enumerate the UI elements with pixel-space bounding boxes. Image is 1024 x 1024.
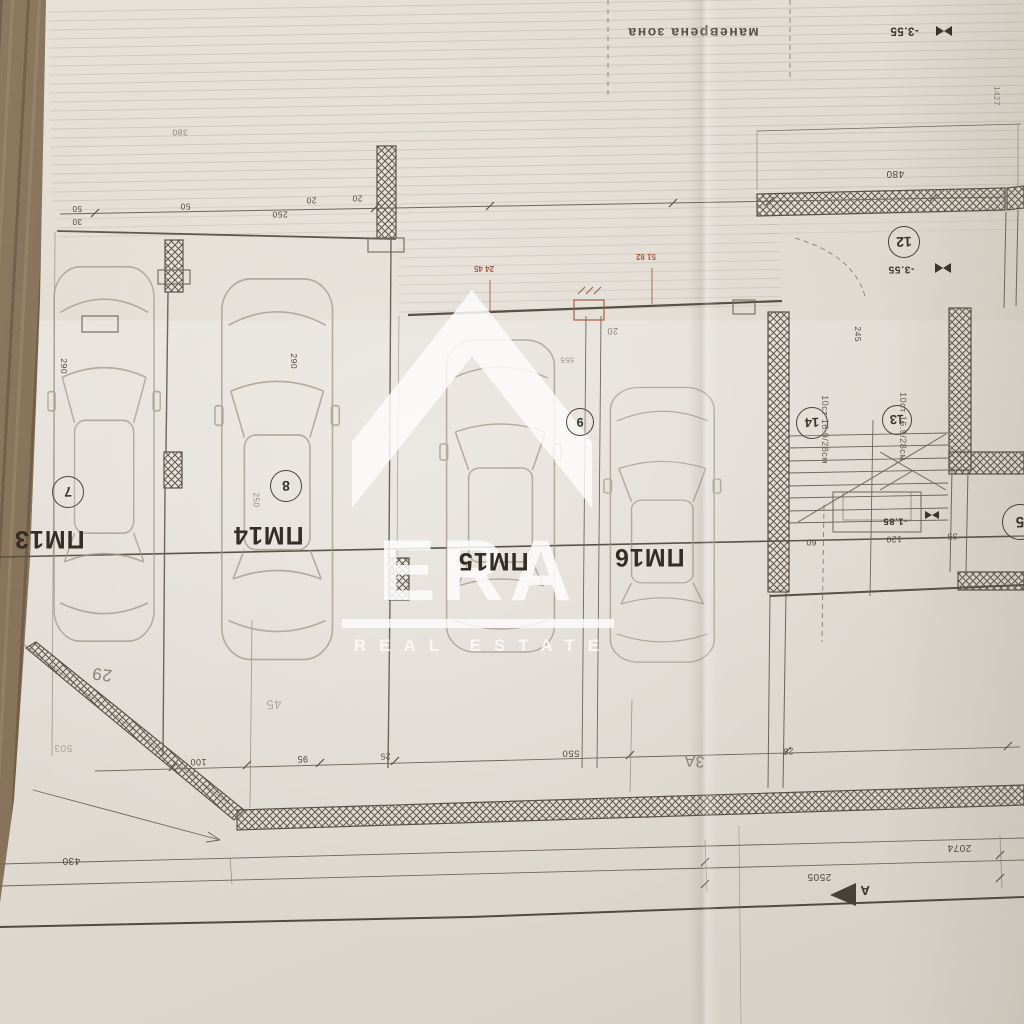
dim-50b: 50 [72,204,82,212]
red-mark-2-top: 51 [647,252,656,261]
red-mark-2-bottom: 82 [636,252,645,261]
red-mark-2: 51 82 [636,252,656,261]
dim-380: 380 [172,128,188,137]
dim-20b: 20 [352,194,362,203]
dim-120: 120 [886,535,902,544]
dim-60: 60 [806,538,816,547]
stair-note-1: 10ст 16.9/28см [820,395,829,464]
dim-25b: 25 [783,747,793,756]
dim-430: 430 [62,855,80,865]
handwritten-29: 29 [91,665,113,684]
dim-2074: 2074 [947,842,971,852]
photo-of-floor-plan: ERA REAL ESTATE маневрена зона -3.55 -3.… [0,0,1024,1024]
red-mark-1: 24 45 [474,264,494,273]
stair-note-2: 10ст 16.9/28см [898,392,907,461]
dim-25a: 25 [380,752,390,761]
dim-50a: 50 [180,202,190,211]
red-mark-1-top: 24 [485,264,494,273]
dim-550: 550 [562,748,579,758]
dim-20a: 20 [306,196,316,205]
dim-555: 555 [560,356,574,364]
dim-35: 35 [947,532,957,541]
dim-290b: 290 [290,353,299,369]
parking-label-pm15: ПМ15 [458,548,529,573]
dim-30: 30 [72,217,82,225]
dim-290a: 290 [60,358,69,374]
level-mark-stair: -3.55 [888,264,914,275]
dim-20-pencil: 20 [607,326,618,335]
parking-label-pm13: ПМ13 [14,526,85,551]
dim-2505: 2505 [807,871,831,881]
level-mark-ramp: -3.55 [890,24,919,36]
plan-linework [0,0,1024,1024]
dim-1427: 1427 [992,86,1000,106]
red-mark-1-bottom: 45 [474,264,483,273]
level-mark-landing: -1.85 [883,516,907,526]
dim-480: 480 [886,168,904,178]
parking-label-pm14: ПМ14 [233,522,304,547]
handwritten-3a: 3A [683,751,705,768]
dim-245: 245 [854,326,863,342]
parking-label-pm16: ПМ16 [614,544,685,569]
handwritten-503: 503 [54,742,72,752]
dim-100: 100 [190,757,207,766]
ramp-hatch-lines [48,0,1024,320]
handwritten-45: 45 [266,697,282,711]
section-marker-letter: A [860,884,870,897]
dim-250a: 250 [272,210,288,219]
maneuvering-zone-label: маневрена зона [627,26,759,40]
dim-95: 95 [297,754,308,763]
dim-250v: 250 [251,493,259,508]
